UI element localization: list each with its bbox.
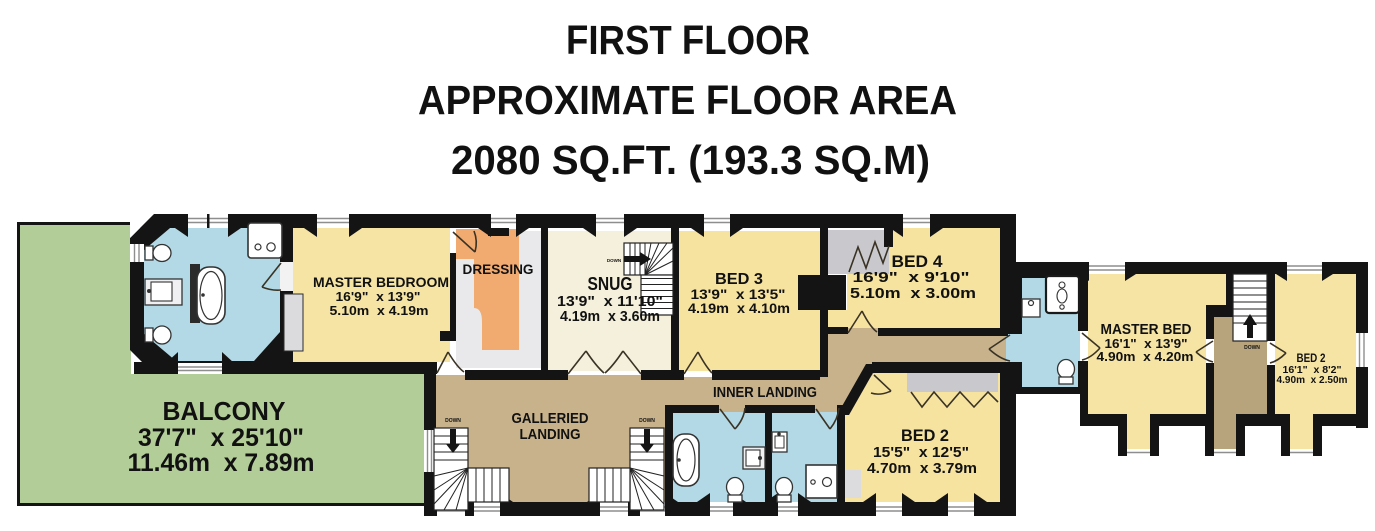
svg-text:16'9" x 13'9": 16'9" x 13'9" — [336, 289, 421, 304]
svg-text:5.10m x 4.19m: 5.10m x 4.19m — [330, 303, 429, 318]
svg-text:BALCONY: BALCONY — [163, 396, 286, 426]
svg-text:DOWN: DOWN — [607, 258, 621, 263]
svg-text:GALLERIED: GALLERIED — [512, 410, 589, 427]
svg-text:11.46m x 7.89m: 11.46m x 7.89m — [128, 449, 315, 477]
svg-text:DOWN: DOWN — [639, 418, 655, 424]
svg-text:4.19m x 4.10m: 4.19m x 4.10m — [688, 300, 790, 316]
svg-text:16'1" x 13'9": 16'1" x 13'9" — [1105, 337, 1188, 351]
svg-text:37'7" x 25'10": 37'7" x 25'10" — [138, 424, 304, 452]
svg-text:MASTER BEDROOM: MASTER BEDROOM — [313, 274, 449, 290]
svg-text:4.90m x 4.20m: 4.90m x 4.20m — [1097, 350, 1194, 364]
svg-text:BED 2: BED 2 — [901, 427, 949, 445]
svg-text:5.10m x 3.00m: 5.10m x 3.00m — [850, 285, 976, 302]
svg-text:DOWN: DOWN — [445, 418, 461, 424]
svg-text:15'5" x 12'5": 15'5" x 12'5" — [873, 444, 969, 461]
svg-text:FIRST FLOOR: FIRST FLOOR — [566, 17, 810, 63]
svg-text:4.90m x 2.50m: 4.90m x 2.50m — [1277, 375, 1348, 386]
svg-text:2080 SQ.FT. (193.3 SQ.M): 2080 SQ.FT. (193.3 SQ.M) — [451, 137, 930, 183]
svg-text:16'9" x 9'10": 16'9" x 9'10" — [853, 269, 970, 286]
svg-text:MASTER BED: MASTER BED — [1101, 321, 1192, 338]
svg-text:APPROXIMATE FLOOR AREA: APPROXIMATE FLOOR AREA — [418, 77, 957, 123]
svg-text:INNER LANDING: INNER LANDING — [713, 385, 817, 401]
svg-text:4.70m x 3.79m: 4.70m x 3.79m — [867, 460, 977, 477]
svg-text:4.19m x 3.60m: 4.19m x 3.60m — [560, 308, 660, 325]
svg-text:DOWN: DOWN — [1244, 345, 1260, 351]
svg-text:BED 2: BED 2 — [1297, 353, 1326, 365]
svg-text:DRESSING: DRESSING — [463, 262, 534, 277]
svg-text:LANDING: LANDING — [520, 426, 581, 443]
svg-text:SNUG: SNUG — [588, 274, 633, 294]
